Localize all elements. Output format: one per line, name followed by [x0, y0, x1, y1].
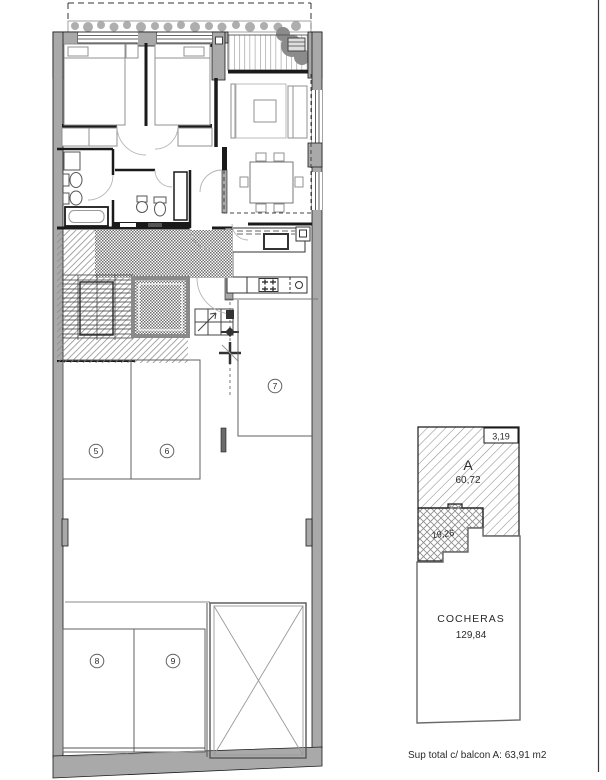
tv-unit: [231, 84, 235, 138]
pilaster-left: [62, 519, 68, 546]
parking-space-8: [63, 629, 134, 752]
balcony-area-label: 3,19: [492, 432, 510, 442]
nightstand: [126, 44, 138, 58]
total-area-note: Sup total c/ balcon A: 63,91 m2: [408, 750, 547, 761]
parking-space-5: [63, 360, 131, 479]
stair-core: [57, 126, 248, 363]
kitchen-sink: [264, 234, 288, 249]
bath-cabinet: [64, 152, 80, 170]
garage-label: COCHERAS: [437, 613, 505, 625]
unit-a-diagram: 3,19 A 60,72 19,26 COCHERAS 129,84: [417, 427, 520, 723]
grill-icon: [288, 38, 305, 51]
kitchen: [225, 227, 318, 299]
balcony-dashed-boundary: [224, 74, 311, 213]
column: [221, 428, 226, 452]
unit-area-label: 60,72: [455, 475, 480, 486]
sink-icon: [137, 202, 148, 213]
parking-number-badges: 5 6 7 8 9: [89, 379, 282, 668]
bedroom-furniture: [62, 44, 212, 146]
coffee-table: [254, 100, 276, 122]
parking-label-5: 5: [94, 446, 99, 456]
pilaster-right: [306, 519, 312, 546]
wardrobe-2: [178, 128, 212, 146]
parking-label-8: 8: [95, 656, 100, 666]
tree-icons: [71, 21, 301, 32]
sofa: [288, 86, 307, 138]
parking-space-6: [131, 360, 200, 479]
toilet-tank: [63, 174, 69, 186]
bath-column-cabinet: [174, 172, 187, 220]
parking-label-6: 6: [165, 446, 170, 456]
toilet-2-icon: [155, 202, 166, 216]
living-dining: [231, 84, 307, 212]
parking-label-7: 7: [273, 381, 278, 391]
parking-space-9: [134, 629, 205, 752]
parking-label-9: 9: [171, 656, 176, 666]
rug: [236, 84, 286, 138]
toilet-icon: [70, 173, 82, 188]
ramp: [207, 603, 306, 758]
terrace-deck: [228, 35, 308, 74]
bidet-icon: [70, 191, 82, 205]
bathrooms: [63, 152, 187, 227]
kitchen-appliance-icon: [296, 282, 303, 289]
garage-area-label: 129,84: [456, 630, 487, 641]
floor-plan-canvas: 5 6 7 8 9 3,19 A 60,72 19,26 COCHERAS 12…: [0, 0, 606, 780]
parking-space-7: [238, 300, 312, 436]
elevator: [133, 278, 188, 336]
parking-level: [63, 300, 312, 758]
unit-label: A: [463, 457, 473, 473]
dining-table: [250, 162, 293, 203]
